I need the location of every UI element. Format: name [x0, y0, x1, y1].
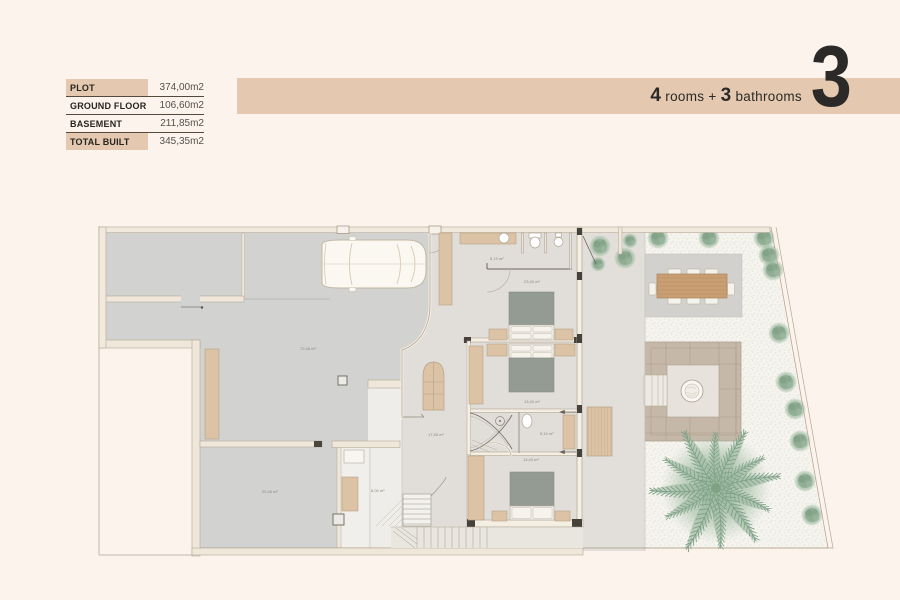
svg-text:13,43 m²: 13,43 m²	[523, 457, 539, 462]
svg-text:72,46 m²: 72,46 m²	[300, 346, 316, 351]
svg-text:25,46 m²: 25,46 m²	[262, 489, 278, 494]
svg-text:23,40 m²: 23,40 m²	[524, 279, 540, 284]
svg-text:8,13 m²: 8,13 m²	[490, 256, 504, 261]
svg-text:17,55 m²: 17,55 m²	[428, 432, 444, 437]
svg-text:6,04 m²: 6,04 m²	[371, 488, 385, 493]
svg-text:5,15 m²: 5,15 m²	[540, 431, 554, 436]
svg-text:13,40 m²: 13,40 m²	[524, 399, 540, 404]
